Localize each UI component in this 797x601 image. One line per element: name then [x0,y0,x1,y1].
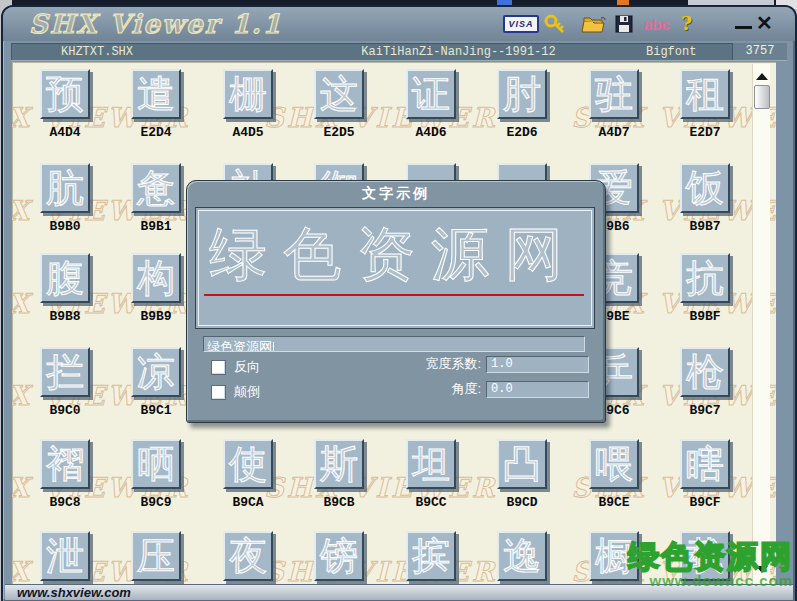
width-factor-label: 宽度系数: [393,355,486,373]
char-button[interactable]: 褶 [40,439,90,489]
char-glyph: 肮 [42,165,88,212]
char-button[interactable]: 枪 [680,347,730,397]
char-button[interactable]: 压 [131,531,181,581]
text-sample-dialog: 文字示例 绿色资源网 绿色资源网 反向 颠倒 宽度系数: 1.0 [186,180,606,423]
vertical-scrollbar[interactable] [752,64,770,584]
char-cell: 预A4D4 [40,69,90,119]
status-url: www.shxview.com [17,585,131,600]
char-glyph: 喂 [591,441,637,488]
char-glyph: 压 [133,533,179,580]
char-button[interactable]: 肮 [40,163,90,213]
angle-label: 角度: [393,380,486,398]
minimize-button[interactable] [735,26,752,29]
flip-label: 颠倒 [234,383,260,401]
char-code-label: E2D6 [485,125,559,140]
char-glyph: 褶 [42,441,88,488]
font-type-label: Bigfont [646,45,732,59]
angle-row: 角度: 0.0 [393,380,589,398]
char-cell: 惫B9B1 [131,163,181,213]
char-code-label: B9C0 [28,403,102,418]
char-code-label: B9CD [485,495,559,510]
char-code-label: E2D5 [302,125,376,140]
char-glyph: 摈 [408,533,454,580]
reverse-checkbox[interactable]: 反向 [211,358,260,376]
char-button[interactable]: 惫 [131,163,181,213]
char-cell: 肘E2D6 [497,69,547,119]
char-code-label: B9CA [211,495,285,510]
width-factor-row: 宽度系数: 1.0 [393,355,589,373]
char-button[interactable]: 晒 [131,439,181,489]
char-button[interactable]: 预 [40,69,90,119]
char-cell: 拦B9C0 [40,347,90,397]
char-glyph: 晒 [133,441,179,488]
scroll-up-icon[interactable] [756,73,768,80]
site-watermark: 绿色资源网 www.downcc.com [628,536,793,589]
char-glyph: 坦 [408,441,454,488]
char-cell: 凉B9C1 [131,347,181,397]
site-watermark-url: www.downcc.com [628,572,793,589]
char-cell: 遣E2D4 [131,69,181,119]
char-cell: 栅A4D5 [223,69,273,119]
char-code-label: E2D4 [119,125,193,140]
char-button[interactable]: 凸 [497,439,547,489]
char-button[interactable]: 驻 [589,69,639,119]
close-button[interactable]: ✕ [756,12,773,34]
char-glyph: 凸 [499,441,545,488]
char-button[interactable]: 夜 [223,531,273,581]
sample-text-value: 绿色资源网 [207,339,272,352]
width-factor-input[interactable]: 1.0 [486,356,589,373]
char-glyph: 肘 [499,71,545,118]
char-button[interactable]: 拦 [40,347,90,397]
key-icon[interactable] [544,13,566,39]
char-button[interactable]: 证 [406,69,456,119]
abc-sample-icon[interactable]: abc [644,16,670,33]
char-cell: 使B9CA [223,439,273,489]
char-cell: 枪B9C7 [680,347,730,397]
char-cell: 斯B9CB [314,439,364,489]
char-button[interactable]: 这 [314,69,364,119]
char-glyph: 拦 [42,349,88,396]
char-glyph: 腹 [42,255,88,302]
char-cell: 腹B9B8 [40,253,90,303]
char-glyph: 镑 [316,533,362,580]
char-button[interactable]: 腹 [40,253,90,303]
char-glyph: 使 [225,441,271,488]
char-code-label: B9B7 [668,219,742,234]
char-cell: 夜 [223,531,273,581]
app-window: SHX Viewer 1.1 VISA [1,5,797,601]
char-cell: 饭B9B7 [680,163,730,213]
char-cell: 抗B9BF [680,253,730,303]
char-button[interactable]: 遣 [131,69,181,119]
save-icon[interactable] [615,15,633,37]
char-cell: 凸B9CD [497,439,547,489]
char-cell: 构B9B9 [131,253,181,303]
char-code-label: B9CF [668,495,742,510]
glyph-grid-area: SHX VIEWER SHX VIEWER SHX VIEWER SHX VIE… [12,62,776,589]
title-bar[interactable]: SHX Viewer 1.1 VISA [3,7,795,41]
desktop: SHX Viewer 1.1 VISA [0,0,797,601]
char-code-label: B9B1 [119,219,193,234]
scrollbar-thumb[interactable] [754,85,770,109]
char-glyph: 凉 [133,349,179,396]
char-glyph: 构 [133,255,179,302]
char-button[interactable]: 肘 [497,69,547,119]
shx-filename: KHZTXT.SHX [61,45,271,59]
char-code-label: A4D7 [577,125,651,140]
char-button[interactable]: 栅 [223,69,273,119]
char-cell: 泄 [40,531,90,581]
char-code-label: B9BF [668,309,742,324]
angle-input[interactable]: 0.0 [486,381,589,398]
char-cell: 逸 [497,531,547,581]
char-button[interactable]: 构 [131,253,181,303]
char-cell: 喂B9CE [589,439,639,489]
char-code-label: B9B0 [28,219,102,234]
char-cell: 褶B9C8 [40,439,90,489]
char-button[interactable]: 摈 [406,531,456,581]
char-button[interactable]: 租 [680,69,730,119]
char-code-label: B9CB [302,495,376,510]
preview-panel: 绿色资源网 [195,207,595,329]
char-glyph: 租 [682,71,728,118]
char-glyph: 逸 [499,533,545,580]
char-glyph: 枪 [682,349,728,396]
info-bar: KHZTXT.SHX KaiTiHanZi-NanJing--1991-12 B… [11,43,787,60]
char-cell: 摈 [406,531,456,581]
char-button[interactable]: 逸 [497,531,547,581]
char-code-label: B9B9 [119,309,193,324]
char-glyph: 惫 [133,165,179,212]
char-glyph: 预 [42,71,88,118]
app-title: SHX Viewer 1.1 [29,9,283,39]
char-code-label: B9C1 [119,403,193,418]
char-code-label: A4D6 [394,125,468,140]
text-caret [273,342,274,352]
char-button[interactable]: 凉 [131,347,181,397]
char-button[interactable]: 饭 [680,163,730,213]
sample-text-input[interactable]: 绿色资源网 [203,336,585,352]
glyph-count: 3757 [732,43,787,60]
char-glyph: 驻 [591,71,637,118]
char-code-label: B9C8 [28,495,102,510]
char-cell: 肮B9B0 [40,163,90,213]
char-cell: 租E2D7 [680,69,730,119]
baseline-rule [204,294,584,296]
checkbox-icon[interactable] [211,360,226,375]
char-glyph: 这 [316,71,362,118]
char-code-label: E2D7 [668,125,742,140]
visa-icon[interactable]: VISA [503,15,539,33]
char-code-label: B9C7 [668,403,742,418]
char-cell: 晒B9C9 [131,439,181,489]
char-button[interactable]: 斯 [314,439,364,489]
char-code-label: B9CC [394,495,468,510]
preview-text: 绿色资源网 [209,216,579,294]
font-description: KaiTiHanZi-NanJing--1991-12 [271,45,646,59]
char-glyph: 夜 [225,533,271,580]
help-icon[interactable]: ? [681,12,692,34]
char-button[interactable]: 喂 [589,439,639,489]
char-cell: 瞎B9CF [680,439,730,489]
char-cell: 这E2D5 [314,69,364,119]
char-code-label: A4D4 [28,125,102,140]
char-button[interactable]: 镑 [314,531,364,581]
char-button[interactable]: 使 [223,439,273,489]
char-code-label: A4D5 [211,125,285,140]
char-cell: 镑 [314,531,364,581]
char-code-label: B9B8 [28,309,102,324]
char-code-label: B9C9 [119,495,193,510]
dialog-title: 文字示例 [187,181,605,206]
char-cell: 驻A4D7 [589,69,639,119]
char-glyph: 栅 [225,71,271,118]
reverse-label: 反向 [234,358,260,376]
char-button[interactable]: 泄 [40,531,90,581]
char-glyph: 证 [408,71,454,118]
char-glyph: 饭 [682,165,728,212]
char-glyph: 瞎 [682,441,728,488]
char-cell: 证A4D6 [406,69,456,119]
char-cell: 坦B9CC [406,439,456,489]
char-button[interactable]: 抗 [680,253,730,303]
char-glyph: 抗 [682,255,728,302]
char-button[interactable]: 瞎 [680,439,730,489]
char-cell: 压 [131,531,181,581]
char-glyph: 泄 [42,533,88,580]
char-button[interactable]: 坦 [406,439,456,489]
open-folder-icon[interactable] [581,15,607,38]
char-glyph: 斯 [316,441,362,488]
char-code-label: B9CE [577,495,651,510]
checkbox-icon[interactable] [211,385,226,400]
char-glyph: 遣 [133,71,179,118]
flip-checkbox[interactable]: 颠倒 [211,383,260,401]
